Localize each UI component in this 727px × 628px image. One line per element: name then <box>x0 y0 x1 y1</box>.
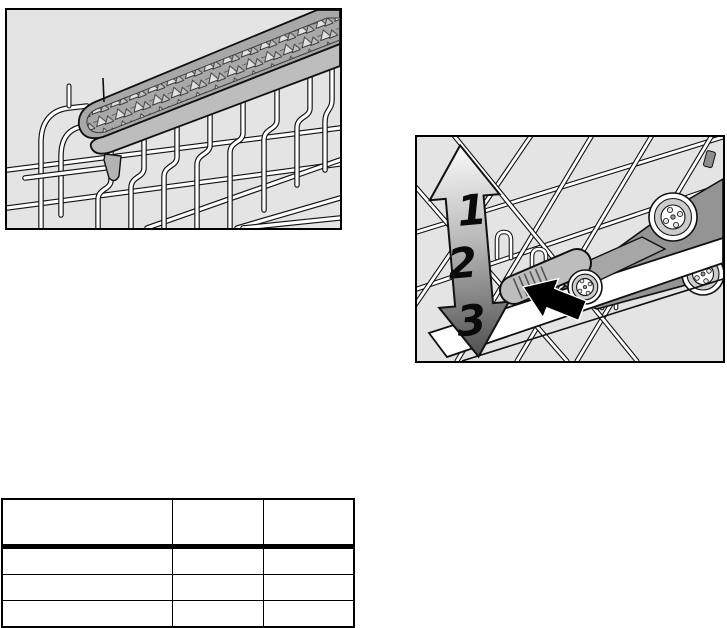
level-label-1: 1 <box>455 184 488 235</box>
settings-table <box>1 498 355 628</box>
rack-height-adjustment-illustration: 1 2 3 <box>417 137 723 361</box>
figure-rack-height-adjustment: 1 2 3 <box>415 135 725 363</box>
level-label-2: 2 <box>446 237 479 288</box>
roller-icon <box>649 193 697 241</box>
table-row <box>2 601 354 628</box>
figure-cutlery-shelf <box>5 8 342 230</box>
table-row <box>2 547 354 575</box>
table-header-row <box>2 499 354 547</box>
table-header-cell <box>2 499 172 547</box>
shelf-pin <box>103 78 104 102</box>
table-cell <box>263 601 354 628</box>
cutlery-shelf-illustration <box>7 10 340 228</box>
table-cell <box>172 547 263 575</box>
table-header-cell <box>263 499 354 547</box>
table-row <box>2 575 354 601</box>
table-cell <box>2 547 172 575</box>
table-cell <box>2 601 172 628</box>
table-cell <box>2 575 172 601</box>
level-label-3: 3 <box>455 295 488 346</box>
table-cell <box>263 575 354 601</box>
table-cell <box>172 601 263 628</box>
manual-page: { "figures": { "cutlery_shelf": { "icon"… <box>0 0 727 623</box>
table-header-cell <box>172 499 263 547</box>
table-cell <box>263 547 354 575</box>
table-cell <box>172 575 263 601</box>
